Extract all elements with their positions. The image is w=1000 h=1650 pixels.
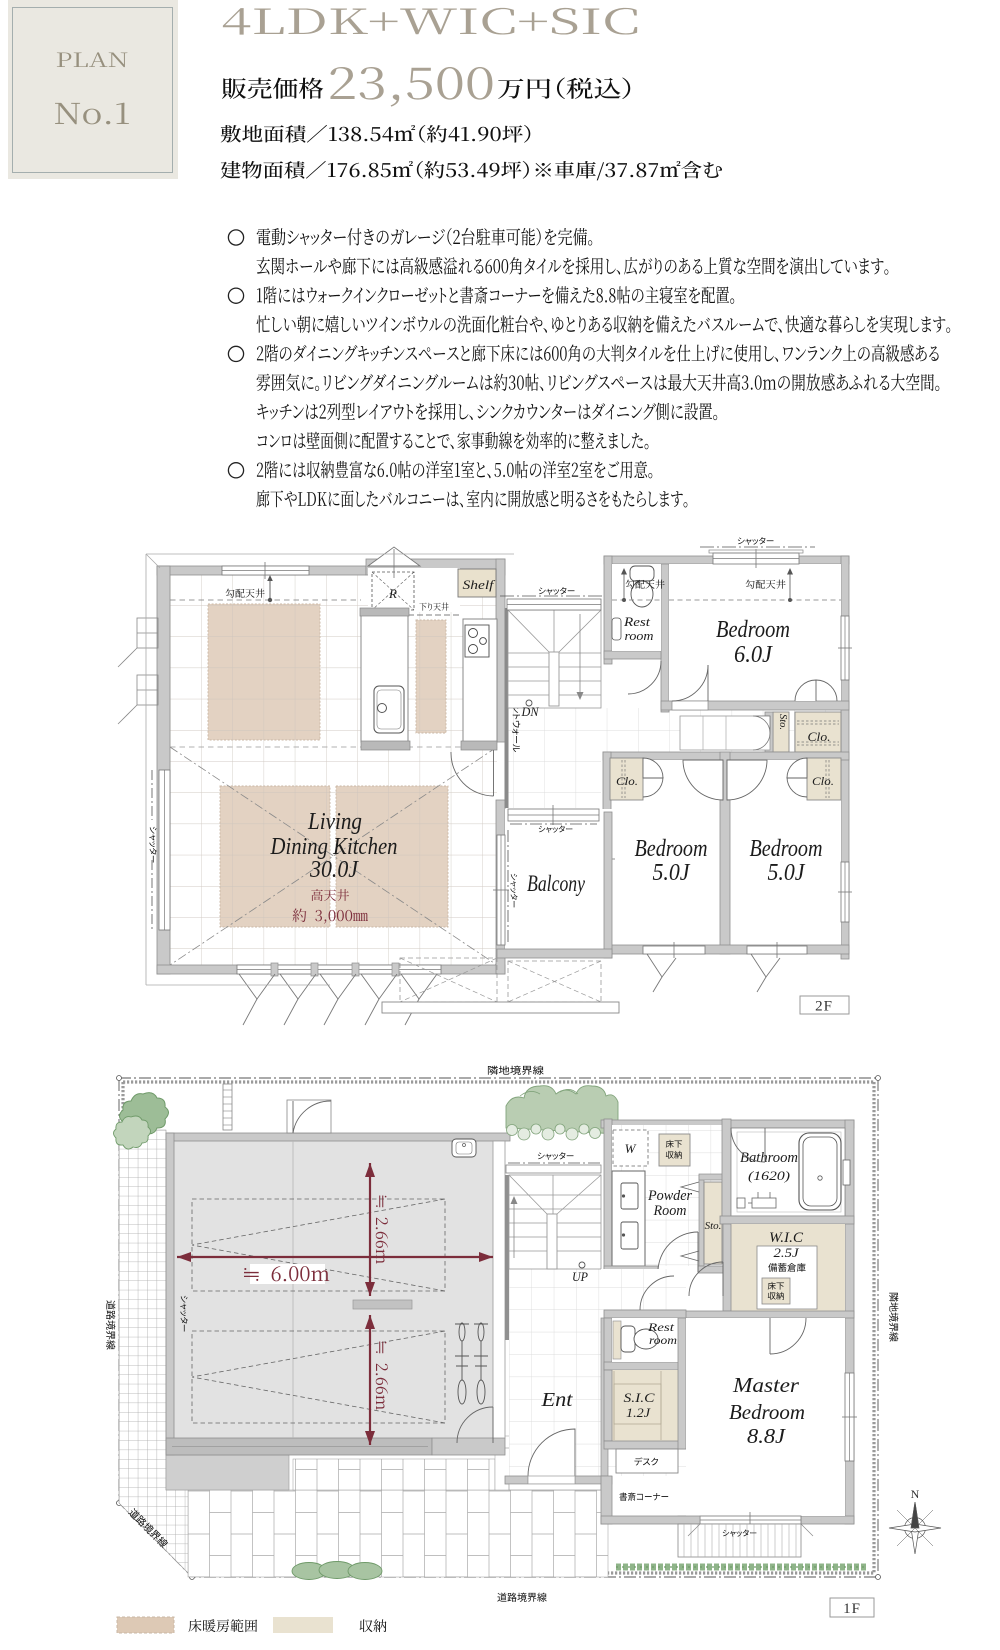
svg-text:Living: Living (307, 809, 362, 835)
svg-text:6.0J: 6.0J (734, 642, 773, 668)
svg-text:30.0J: 30.0J (309, 857, 359, 883)
svg-text:Balcony: Balcony (527, 871, 586, 896)
svg-text:Sto.: Sto. (777, 714, 788, 730)
svg-text:Rest: Rest (623, 615, 651, 629)
svg-text:Rest: Rest (647, 1320, 675, 1334)
svg-text:N: N (911, 1487, 920, 1501)
svg-text:Shelf: Shelf (463, 578, 496, 592)
svg-text:W: W (625, 1141, 637, 1156)
svg-text:8.8J: 8.8J (747, 1424, 787, 1448)
svg-text:W.I.C: W.I.C (769, 1230, 803, 1246)
svg-text:R: R (388, 586, 397, 601)
svg-text:1F: 1F (843, 1601, 861, 1617)
svg-text:room: room (625, 629, 654, 643)
svg-text:2F: 2F (815, 999, 833, 1015)
svg-text:Ent: Ent (540, 1389, 573, 1411)
svg-text:Sto.: Sto. (705, 1220, 722, 1232)
svg-text:DN: DN (521, 705, 540, 719)
svg-text:UP: UP (572, 1270, 588, 1284)
svg-text:Clo.: Clo. (812, 774, 834, 788)
svg-text:Powder: Powder (647, 1188, 692, 1204)
svg-text:Bedroom: Bedroom (750, 836, 823, 862)
svg-text:Clo.: Clo. (808, 730, 831, 744)
svg-text:Clo.: Clo. (616, 774, 638, 788)
svg-text:Bedroom: Bedroom (716, 617, 790, 643)
svg-text:5.0J: 5.0J (768, 860, 806, 886)
svg-text:S.I.C: S.I.C (624, 1390, 655, 1405)
svg-text:Bedroom: Bedroom (729, 1400, 805, 1424)
svg-text:5.0J: 5.0J (653, 860, 691, 886)
svg-text:Bedroom: Bedroom (635, 836, 708, 862)
svg-text:Room: Room (653, 1203, 687, 1219)
svg-text:1.2J: 1.2J (626, 1405, 651, 1420)
svg-text:2.5J: 2.5J (774, 1245, 800, 1260)
svg-text:(1620): (1620) (748, 1168, 790, 1183)
svg-text:Master: Master (732, 1373, 800, 1397)
svg-text:room: room (649, 1333, 677, 1347)
